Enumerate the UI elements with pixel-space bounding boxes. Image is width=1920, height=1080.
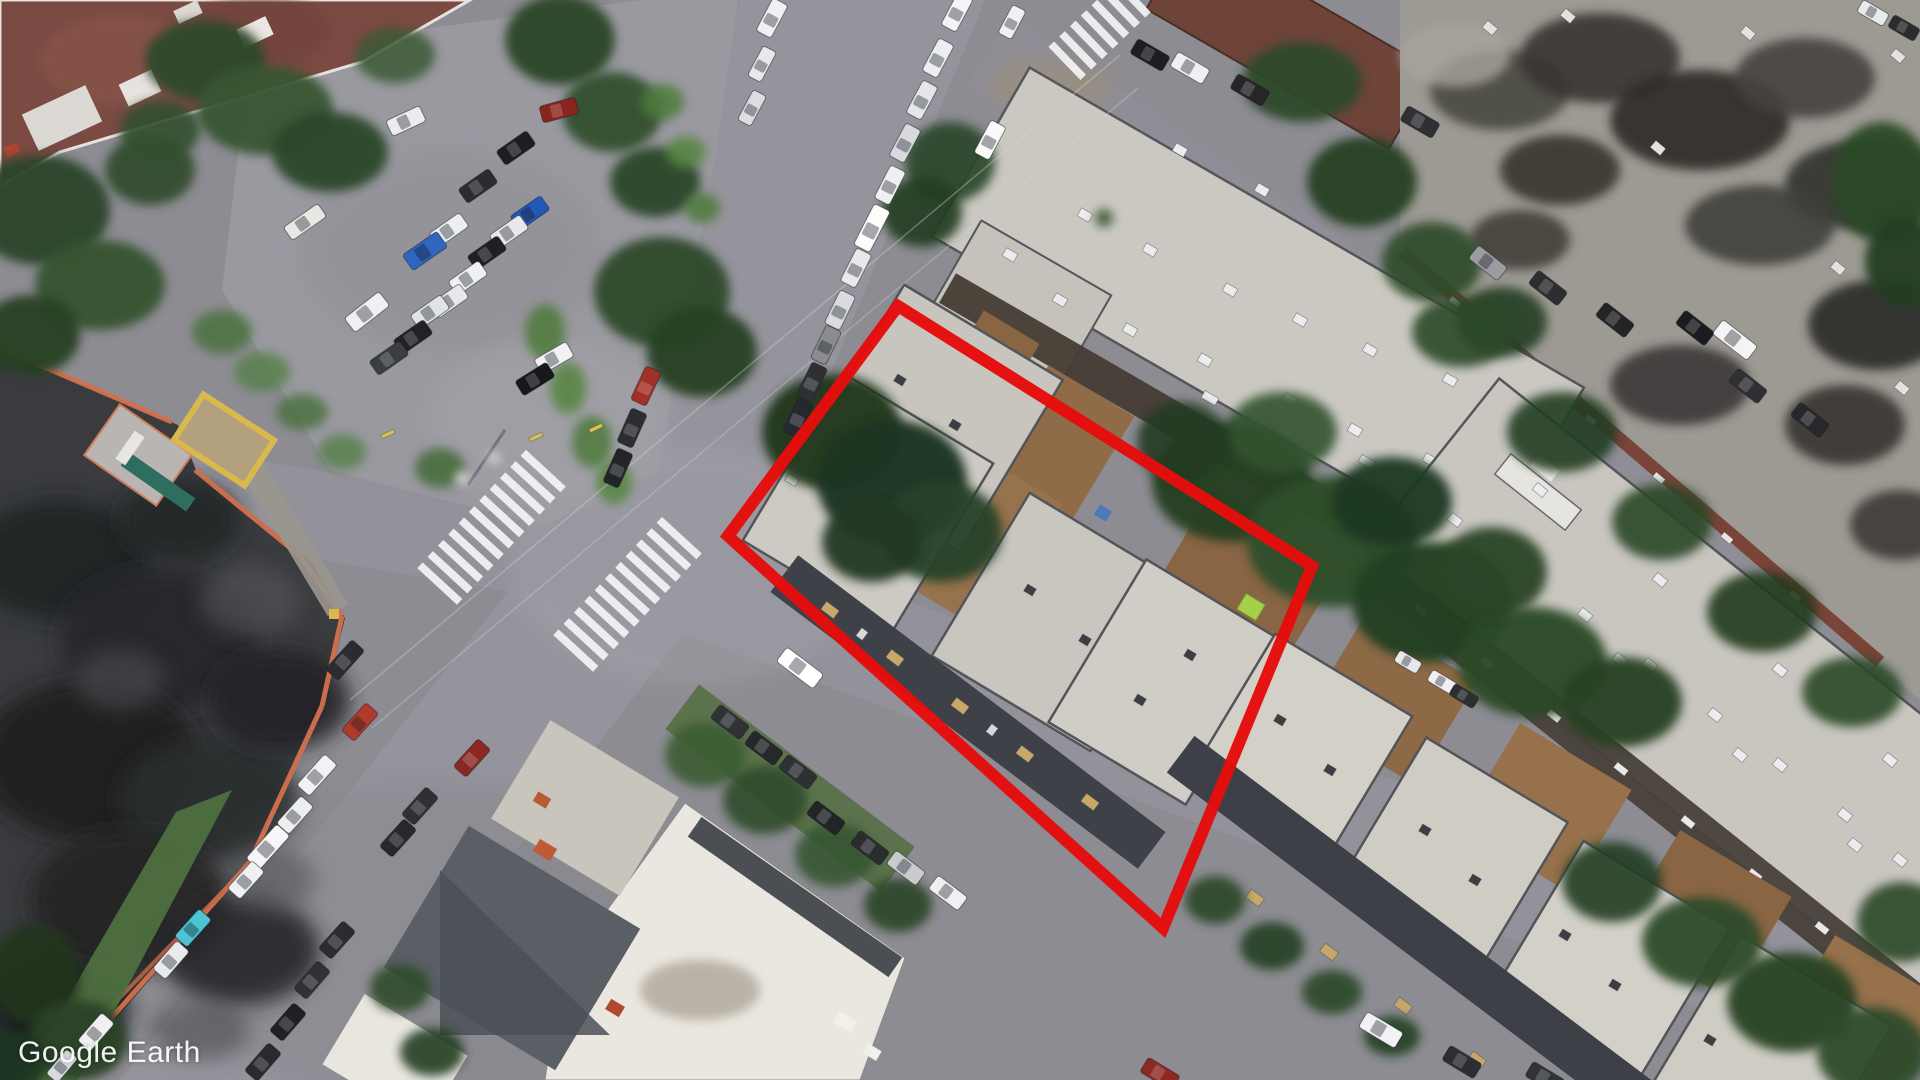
aerial-imagery	[0, 0, 1920, 1080]
scene-root	[0, 0, 1920, 1080]
tree-canopy	[120, 100, 200, 160]
parked-car	[928, 875, 968, 911]
ground-shading	[75, 650, 165, 710]
tree-canopy	[355, 27, 435, 83]
tree-canopy	[640, 84, 684, 120]
tree-canopy	[1802, 657, 1902, 727]
tree-canopy	[1707, 572, 1817, 652]
tree-canopy	[1307, 137, 1417, 227]
deck-blue-object	[1094, 504, 1112, 521]
industrial-roof-blotches	[1500, 135, 1620, 205]
tree-canopy	[272, 112, 388, 192]
tree-canopy	[684, 193, 720, 223]
tree-canopy	[864, 878, 932, 932]
tree-canopy	[1507, 392, 1617, 472]
tree-canopy	[822, 502, 922, 582]
industrial-roof-blotches	[1735, 38, 1875, 118]
tree-canopy	[370, 964, 430, 1012]
tree-canopy	[647, 307, 757, 397]
tree-canopy	[1185, 876, 1245, 924]
industrial-roof-blotches	[1610, 345, 1750, 425]
tree-canopy	[1240, 922, 1304, 970]
roof-stain	[640, 960, 760, 1020]
tree-canopy	[318, 434, 366, 470]
tree-canopy	[192, 310, 252, 354]
tree-canopy	[1412, 297, 1512, 367]
street-lamp	[488, 453, 500, 463]
tree-canopy	[276, 394, 328, 430]
tree-canopy	[234, 352, 290, 392]
google-earth-viewport: Google Earth	[0, 0, 1920, 1080]
tree-canopy	[1242, 42, 1362, 122]
parked-car	[1130, 38, 1171, 71]
tree-canopy	[1227, 392, 1337, 472]
tree-canopy	[550, 362, 586, 414]
facade-window	[1246, 889, 1265, 907]
tree-canopy	[1437, 527, 1547, 617]
tree-canopy	[1562, 842, 1662, 922]
google-earth-watermark: Google Earth	[18, 1036, 201, 1070]
tree-canopy	[572, 416, 612, 468]
tree-canopy	[1302, 970, 1362, 1014]
facade-window	[1394, 997, 1413, 1015]
tree-canopy	[1562, 657, 1682, 747]
tree-canopy	[1612, 484, 1712, 560]
parked-car	[1442, 1045, 1482, 1079]
yellow-post	[329, 609, 339, 619]
facade-window	[1320, 943, 1339, 961]
tree-canopy	[666, 136, 706, 168]
tree-canopy	[1332, 457, 1452, 547]
tree-canopy	[400, 1028, 464, 1076]
industrial-roof-blotches	[1685, 185, 1835, 265]
ground-shading	[200, 565, 300, 635]
rooftop-planter	[1095, 209, 1113, 227]
parked-car	[1140, 1057, 1180, 1080]
tree-canopy	[1382, 222, 1482, 302]
parked-car	[1170, 51, 1211, 84]
street-lamp	[455, 472, 469, 484]
